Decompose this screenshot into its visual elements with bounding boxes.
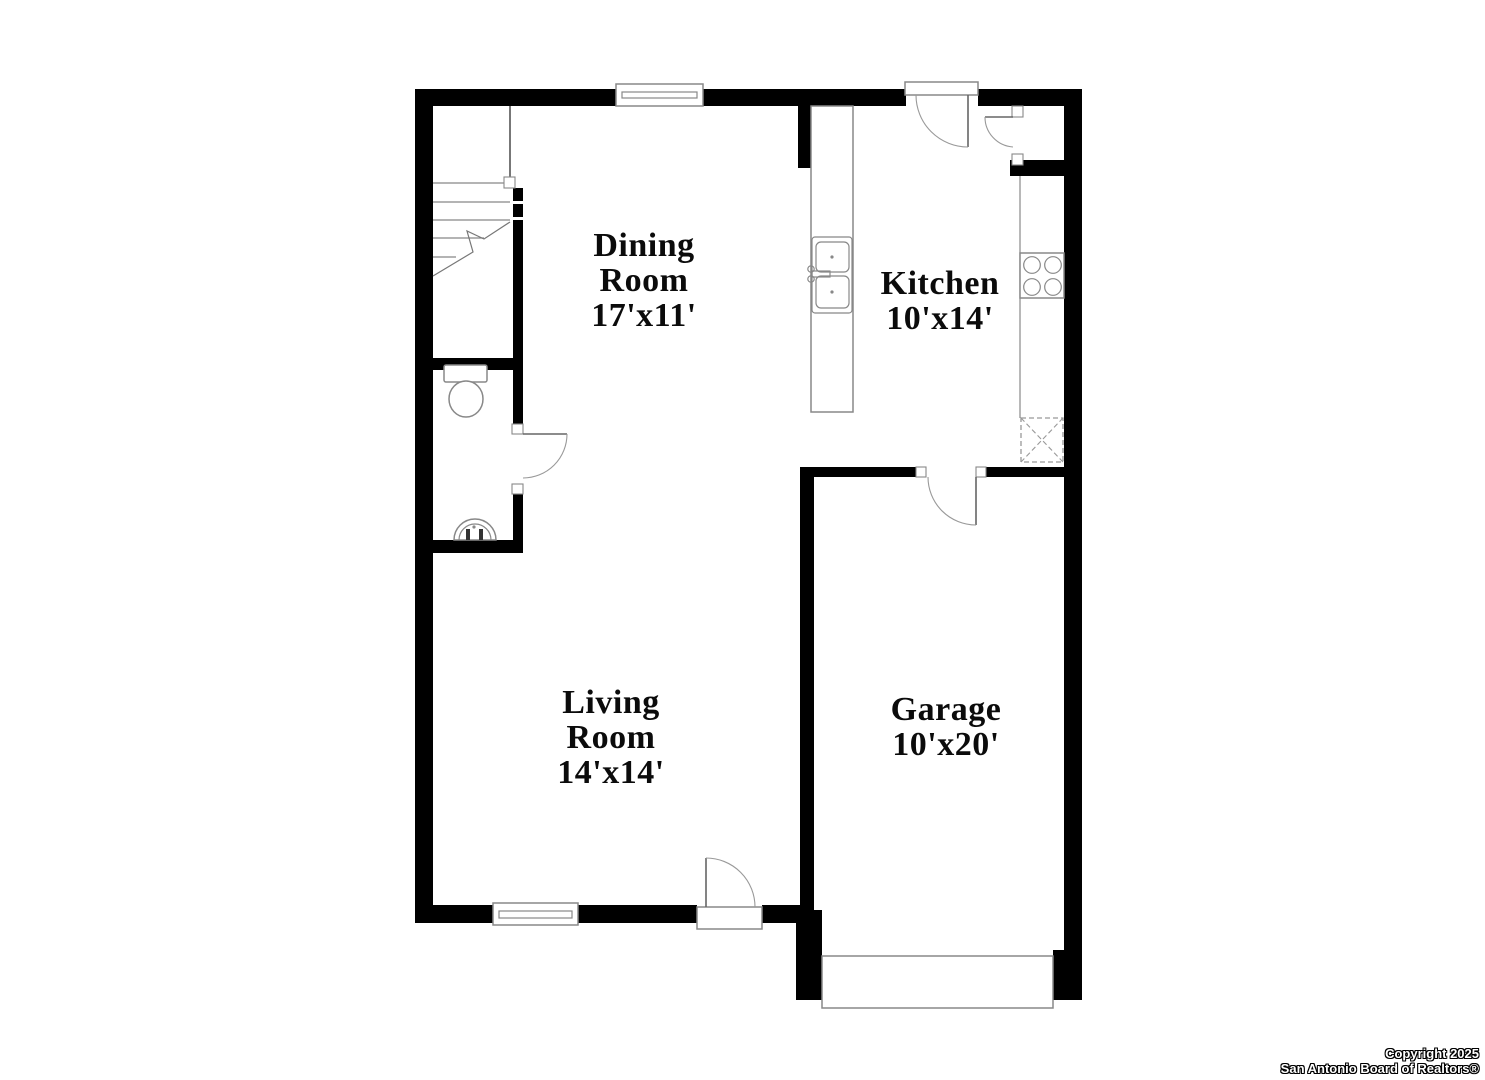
wall-right bbox=[1064, 89, 1082, 1000]
garage-entry-door bbox=[916, 467, 986, 525]
bathroom-door-swing-arc bbox=[523, 434, 567, 478]
pantry-door bbox=[985, 106, 1023, 165]
wall-garage-left-column bbox=[796, 910, 822, 1000]
stair-newel-post bbox=[504, 177, 515, 188]
front-door bbox=[697, 858, 762, 929]
garage-entry-door-swing-arc bbox=[928, 477, 976, 525]
toilet-icon bbox=[444, 365, 487, 417]
room-label-dining: Dining Room 17'x11' bbox=[494, 228, 794, 333]
wall-stair-dash-1 bbox=[513, 188, 523, 201]
back-door bbox=[905, 82, 978, 147]
living-name-line2: Room bbox=[461, 720, 761, 755]
copyright-line2: San Antonio Board of Realtors® bbox=[1281, 1061, 1479, 1076]
wall-left bbox=[415, 89, 433, 923]
peninsula-counter bbox=[808, 106, 853, 412]
back-door-threshold bbox=[905, 82, 978, 95]
front-door-threshold bbox=[697, 907, 762, 929]
kitchen-name: Kitchen bbox=[790, 266, 1090, 301]
back-door-swing-arc bbox=[916, 95, 968, 147]
room-label-living: Living Room 14'x14' bbox=[461, 685, 761, 790]
wall-kitchen-garage-left bbox=[800, 467, 918, 477]
dining-name-line2: Room bbox=[494, 263, 794, 298]
copyright-line1: Copyright 2025 bbox=[1281, 1046, 1479, 1061]
wall-garage-right-column bbox=[1053, 950, 1082, 1000]
kitchen-dimensions: 10'x14' bbox=[790, 301, 1090, 336]
pantry-door-swing-arc bbox=[985, 117, 1013, 147]
garage-dimensions: 10'x20' bbox=[796, 727, 1096, 762]
bathroom-door bbox=[512, 424, 567, 494]
dining-name-line1: Dining bbox=[494, 228, 794, 263]
wall-stair-dash-2 bbox=[513, 204, 523, 217]
refrigerator-icon bbox=[1021, 418, 1063, 462]
wall-kitchen-garage-right bbox=[984, 467, 1082, 477]
front-door-swing-arc bbox=[706, 858, 755, 907]
room-label-kitchen: Kitchen 10'x14' bbox=[790, 266, 1090, 336]
dining-dimensions: 17'x11' bbox=[494, 298, 794, 333]
wall-bath-bottom bbox=[433, 540, 523, 553]
pedestal-sink-icon bbox=[454, 519, 496, 540]
dining-window bbox=[616, 84, 703, 106]
floor-plan-drawing bbox=[0, 0, 1485, 1080]
room-label-garage: Garage 10'x20' bbox=[796, 692, 1096, 762]
garage-door bbox=[822, 956, 1053, 1008]
floor-plan-page: Dining Room 17'x11' Kitchen 10'x14' Livi… bbox=[0, 0, 1485, 1080]
living-dimensions: 14'x14' bbox=[461, 755, 761, 790]
garage-name: Garage bbox=[796, 692, 1096, 727]
copyright-notice: Copyright 2025 San Antonio Board of Real… bbox=[1281, 1046, 1479, 1076]
living-name-line1: Living bbox=[461, 685, 761, 720]
living-window bbox=[493, 903, 578, 925]
